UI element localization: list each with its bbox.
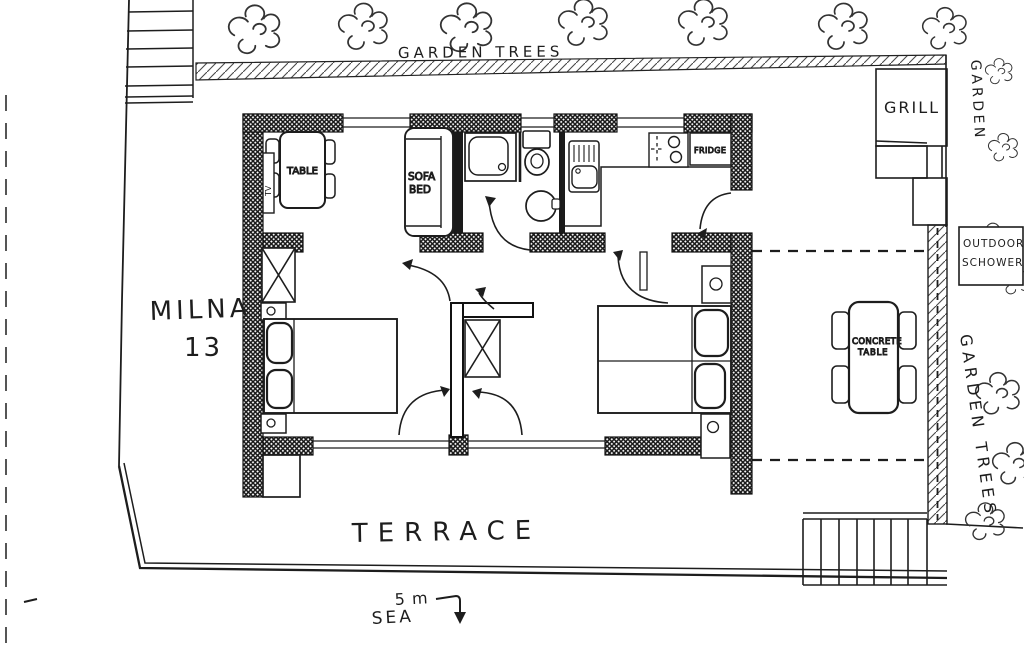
grill-label: GRILL — [884, 98, 940, 117]
door-arc-terrace-left — [399, 390, 447, 435]
tv-label: TV — [264, 185, 273, 197]
water-boiler — [526, 191, 560, 221]
pillow — [267, 370, 292, 408]
door-leaf — [640, 252, 647, 290]
tree-icon — [985, 59, 1011, 84]
left-bedroom — [261, 303, 397, 433]
chair — [832, 312, 849, 349]
stove — [649, 133, 688, 167]
pillow — [695, 310, 728, 356]
sofa-bed: SOFA BED — [405, 128, 453, 236]
kitchen-sink — [569, 141, 599, 192]
chair — [832, 366, 849, 403]
divider-wall — [451, 303, 463, 437]
divider-wall-arm — [463, 303, 533, 317]
nightstand — [701, 414, 730, 458]
sofa-bed-label-2: BED — [409, 184, 431, 196]
bathroom-fixtures — [465, 131, 560, 221]
outdoor-shower: OUTDOOR SCHOWER — [959, 227, 1024, 285]
shower-tray — [465, 133, 516, 181]
tv-cabinet: TV — [263, 153, 274, 213]
nightstand — [702, 266, 731, 303]
chair — [899, 366, 916, 403]
double-bed — [598, 306, 731, 413]
garden-trees-top-row — [229, 0, 966, 53]
house-name-line1: MILNA — [149, 293, 252, 327]
garden-right-label: GARDEN — [967, 59, 987, 141]
house-name-line2: 13 — [184, 333, 223, 363]
garden-trees-right-label: GARDEN TREES — [956, 333, 1001, 519]
concrete-table-label-1: CONCRETE — [852, 337, 902, 347]
nightstand — [261, 303, 286, 320]
door-arc-left-bedroom-entry — [408, 265, 450, 301]
toilet — [523, 131, 550, 175]
floor-plan-svg: OUTDOOR SCHOWER CONCRETE TABLE — [0, 0, 1024, 648]
outdoor-shower-label-1: OUTDOOR — [963, 238, 1024, 250]
nightstand — [261, 414, 286, 433]
right-bedroom — [598, 266, 731, 458]
outdoor-shower-label-2: SCHOWER — [962, 257, 1023, 269]
kitchen: FRIDGE — [563, 132, 731, 226]
tree-icon — [339, 3, 387, 49]
bottom-right-boundary — [946, 524, 1023, 528]
pillow — [695, 364, 725, 408]
tree-icon — [988, 133, 1017, 160]
dining-set: TABLE — [266, 132, 335, 208]
garden-steps — [125, 0, 193, 103]
tree-icon — [229, 5, 280, 53]
fridge-label: FRIDGE — [694, 146, 726, 155]
floor-plan-page: OUTDOOR SCHOWER CONCRETE TABLE — [0, 0, 1024, 648]
pillow — [267, 323, 292, 363]
door-arc-kitchen-exterior — [700, 193, 731, 229]
grill-structure — [876, 69, 947, 225]
terrace-label: TERRACE — [351, 516, 542, 549]
porch-box — [263, 455, 300, 497]
left-boundary — [119, 0, 129, 466]
wardrobe-hall — [465, 320, 500, 377]
sofa-bed-label-1: SOFA — [408, 171, 436, 183]
small-tick — [24, 599, 37, 602]
garden-wall-strip — [928, 225, 947, 524]
top-hatched-path — [196, 55, 946, 80]
sea-label: SEA — [371, 607, 414, 629]
wardrobe-left-bedroom — [262, 248, 295, 302]
double-bed — [264, 319, 397, 413]
terrace-stairs — [803, 513, 947, 585]
tree-icon — [679, 0, 727, 45]
fridge: FRIDGE — [690, 133, 731, 165]
concrete-table: CONCRETE TABLE — [832, 302, 916, 413]
door-arc-terrace-right — [477, 392, 522, 435]
tree-icon — [559, 0, 607, 45]
door-arc-bathroom — [489, 200, 530, 250]
sea-arrow — [436, 596, 466, 624]
scale-distance-label: 5 m — [394, 588, 429, 609]
tree-icon — [993, 443, 1024, 484]
tree-icon — [819, 3, 867, 49]
concrete-table-label-2: TABLE — [857, 348, 888, 358]
dining-table-label: TABLE — [286, 166, 318, 177]
tree-icon — [923, 8, 966, 49]
garden-trees-top-label: GARDEN TREES — [398, 43, 564, 62]
terrace-dashed-boundary — [752, 251, 928, 460]
